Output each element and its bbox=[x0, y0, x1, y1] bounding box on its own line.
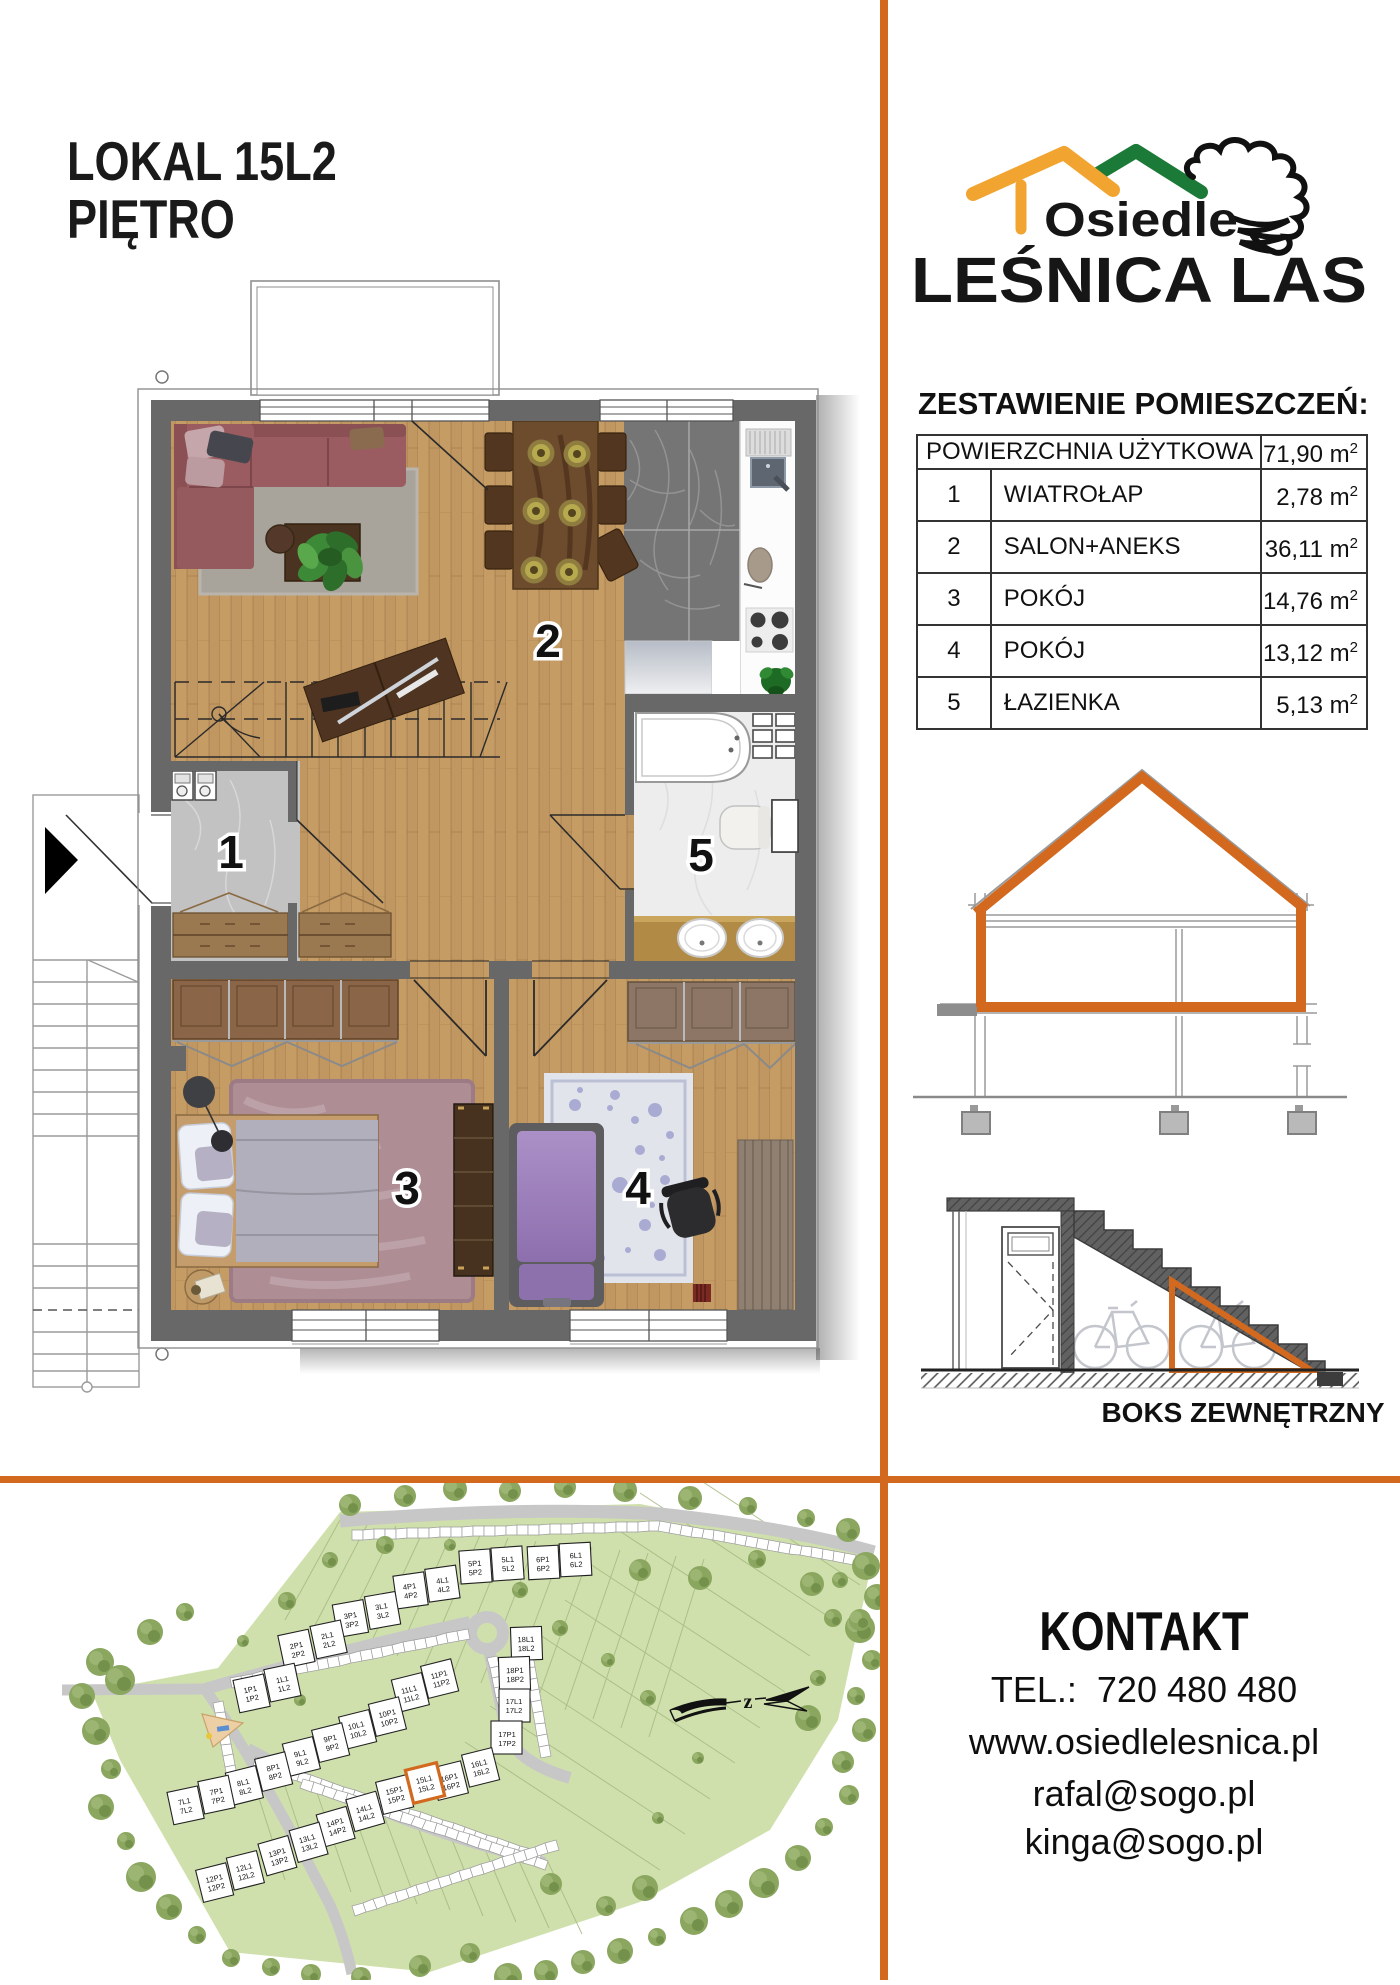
svg-text:18L2: 18L2 bbox=[518, 1644, 535, 1654]
svg-text:2: 2 bbox=[535, 615, 561, 667]
svg-text:6P2: 6P2 bbox=[536, 1564, 550, 1574]
svg-text:4P2: 4P2 bbox=[404, 1590, 418, 1601]
svg-text:5L2: 5L2 bbox=[502, 1564, 515, 1574]
svg-text:5: 5 bbox=[688, 829, 714, 881]
svg-text:BOKS ZEWNĘTRZNY: BOKS ZEWNĘTRZNY bbox=[1101, 1397, 1384, 1428]
svg-text:17L2: 17L2 bbox=[506, 1706, 523, 1715]
svg-text:6L2: 6L2 bbox=[570, 1560, 583, 1570]
svg-text:Osiedle: Osiedle bbox=[1044, 194, 1238, 247]
svg-text:4: 4 bbox=[625, 1162, 651, 1214]
svg-text:3: 3 bbox=[394, 1162, 420, 1214]
svg-text:5P2: 5P2 bbox=[468, 1568, 482, 1578]
svg-text:z: z bbox=[744, 1691, 753, 1713]
svg-text:1: 1 bbox=[218, 826, 244, 878]
svg-text:17P1: 17P1 bbox=[498, 1730, 516, 1739]
svg-text:4L2: 4L2 bbox=[437, 1584, 451, 1595]
svg-text:18P2: 18P2 bbox=[506, 1675, 524, 1685]
svg-text:LEŚNICA LAS: LEŚNICA LAS bbox=[911, 244, 1367, 316]
svg-text:17P2: 17P2 bbox=[498, 1739, 516, 1748]
svg-text:17L1: 17L1 bbox=[506, 1697, 523, 1706]
